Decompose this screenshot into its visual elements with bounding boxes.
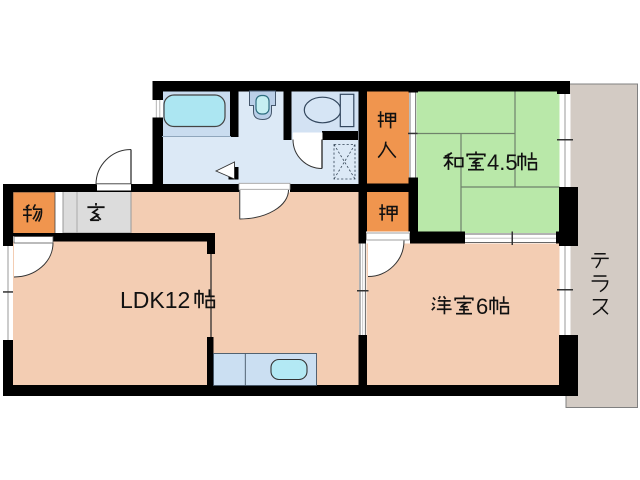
svg-text:4.5: 4.5 <box>487 150 518 175</box>
svg-text:6: 6 <box>476 294 488 319</box>
svg-text:LDK12: LDK12 <box>120 287 190 313</box>
